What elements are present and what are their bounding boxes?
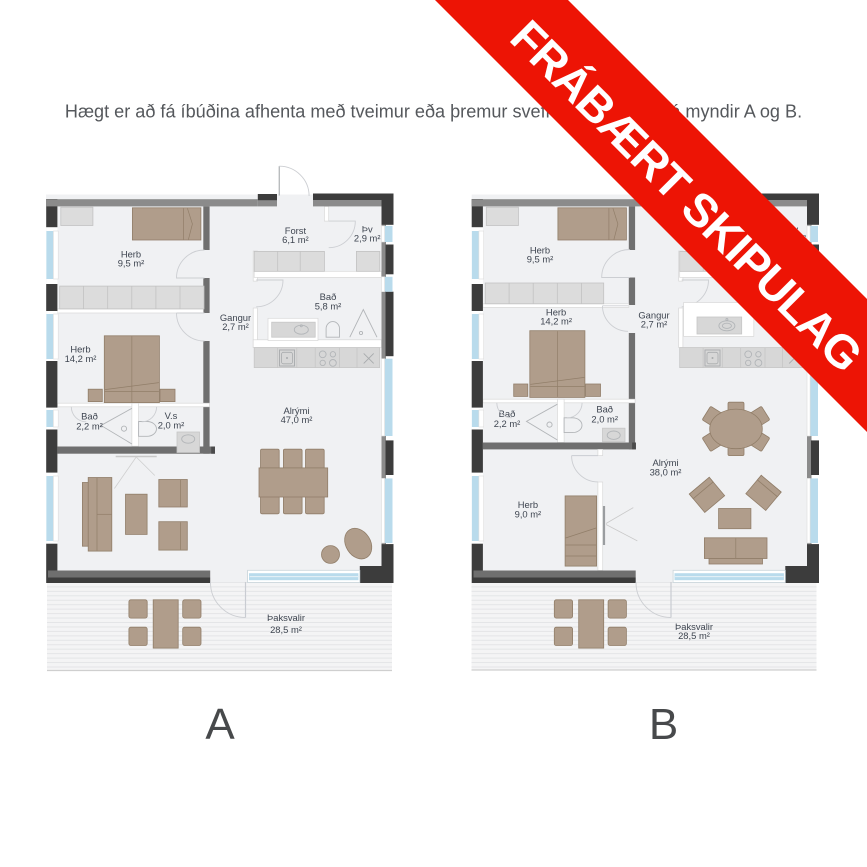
svg-text:14,2 m²: 14,2 m²: [540, 316, 572, 327]
svg-text:28,5 m²: 28,5 m²: [678, 630, 710, 641]
svg-text:2,9 m²: 2,9 m²: [354, 233, 381, 244]
svg-text:14,2 m²: 14,2 m²: [65, 353, 97, 364]
svg-text:28,5 m²: 28,5 m²: [270, 624, 302, 635]
svg-text:6,1 m²: 6,1 m²: [282, 234, 309, 245]
svg-text:Hægt er að fá íbúðina afhenta: Hægt er að fá íbúðina afhenta með tveimu…: [65, 102, 802, 122]
svg-text:2,7 m²: 2,7 m²: [641, 319, 668, 330]
svg-text:47,0 m²: 47,0 m²: [281, 414, 313, 425]
svg-text:2,0 m²: 2,0 m²: [591, 413, 618, 424]
svg-text:Þaksvalir: Þaksvalir: [267, 612, 305, 623]
svg-text:2,2 m²: 2,2 m²: [76, 420, 103, 431]
svg-text:9,5 m²: 9,5 m²: [527, 254, 554, 265]
svg-text:2,7 m²: 2,7 m²: [222, 321, 249, 332]
svg-text:9,5 m²: 9,5 m²: [118, 258, 145, 269]
svg-text:B: B: [649, 700, 678, 749]
svg-text:5,8 m²: 5,8 m²: [315, 300, 342, 311]
svg-text:A: A: [205, 700, 235, 749]
svg-text:2,2 m²: 2,2 m²: [494, 418, 521, 429]
svg-text:2,0 m²: 2,0 m²: [158, 420, 185, 431]
svg-text:38,0 m²: 38,0 m²: [650, 466, 682, 477]
svg-text:9,0 m²: 9,0 m²: [515, 508, 542, 519]
